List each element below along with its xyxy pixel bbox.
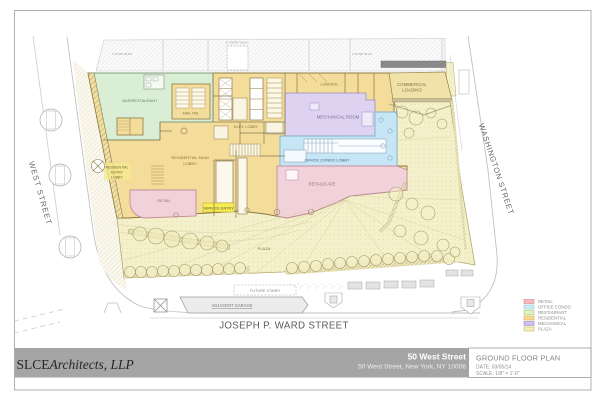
svg-text:RESIDENTIAL MAIN: RESIDENTIAL MAIN: [171, 155, 208, 160]
svg-text:ELEV. LOBBY: ELEV. LOBBY: [234, 125, 259, 129]
svg-text:OFFICE CONDO: OFFICE CONDO: [538, 305, 572, 310]
svg-text:JOSEPH P. WARD STREET: JOSEPH P. WARD STREET: [219, 321, 349, 332]
svg-text:RETAIL: RETAIL: [157, 198, 171, 203]
svg-text:BAR/RESTAURANT: BAR/RESTAURANT: [122, 98, 158, 103]
svg-text:50 West Street, New York, NY 1: 50 West Street, New York, NY 10006: [358, 364, 466, 371]
svg-text:LOADING: LOADING: [320, 83, 337, 87]
svg-text:PLAZA: PLAZA: [258, 246, 271, 251]
svg-text:37 STORY BLDG: 37 STORY BLDG: [225, 41, 249, 45]
svg-text:MECHANICAL: MECHANICAL: [538, 321, 567, 326]
svg-text:LOBBY: LOBBY: [183, 161, 197, 166]
svg-text:GROUND FLOOR PLAN: GROUND FLOOR PLAN: [476, 354, 560, 363]
svg-text:1 STORY BLDG: 1 STORY BLDG: [112, 52, 132, 56]
svg-text:RETAIL/CAFE: RETAIL/CAFE: [309, 182, 336, 187]
svg-text:PLAZA: PLAZA: [538, 327, 552, 332]
svg-text:SLCEArchitects, LLP: SLCEArchitects, LLP: [17, 357, 134, 372]
svg-text:FUTURE STAIRS: FUTURE STAIRS: [250, 289, 280, 293]
svg-text:LOBBY: LOBBY: [111, 176, 123, 180]
svg-text:DATE: 03/05/14: DATE: 03/05/14: [476, 365, 511, 371]
svg-text:SERVICE ENTRY: SERVICE ENTRY: [203, 207, 234, 211]
svg-text:ENTRY: ENTRY: [111, 171, 123, 175]
svg-text:COMMERCIAL: COMMERCIAL: [397, 82, 427, 87]
svg-text:LOADING: LOADING: [402, 88, 422, 93]
svg-text:OFFICE CONDO LOBBY: OFFICE CONDO LOBBY: [304, 158, 349, 163]
svg-text:MAIL RM.: MAIL RM.: [183, 112, 200, 116]
svg-text:RESIDENTIAL: RESIDENTIAL: [106, 166, 129, 170]
svg-text:50 West Street: 50 West Street: [408, 352, 467, 362]
svg-text:RESTAURANT: RESTAURANT: [538, 310, 567, 315]
svg-text:1 STORY BLDG: 1 STORY BLDG: [352, 52, 372, 56]
svg-text:MECHANICAL ROOM: MECHANICAL ROOM: [317, 115, 360, 120]
svg-text:RETAIL: RETAIL: [538, 299, 553, 304]
svg-text:ADJACENT GARAGE: ADJACENT GARAGE: [211, 303, 252, 308]
svg-text:RESIDENTIAL: RESIDENTIAL: [538, 316, 567, 321]
svg-text:SCALE: 1/8" = 1'-0": SCALE: 1/8" = 1'-0": [476, 371, 520, 377]
